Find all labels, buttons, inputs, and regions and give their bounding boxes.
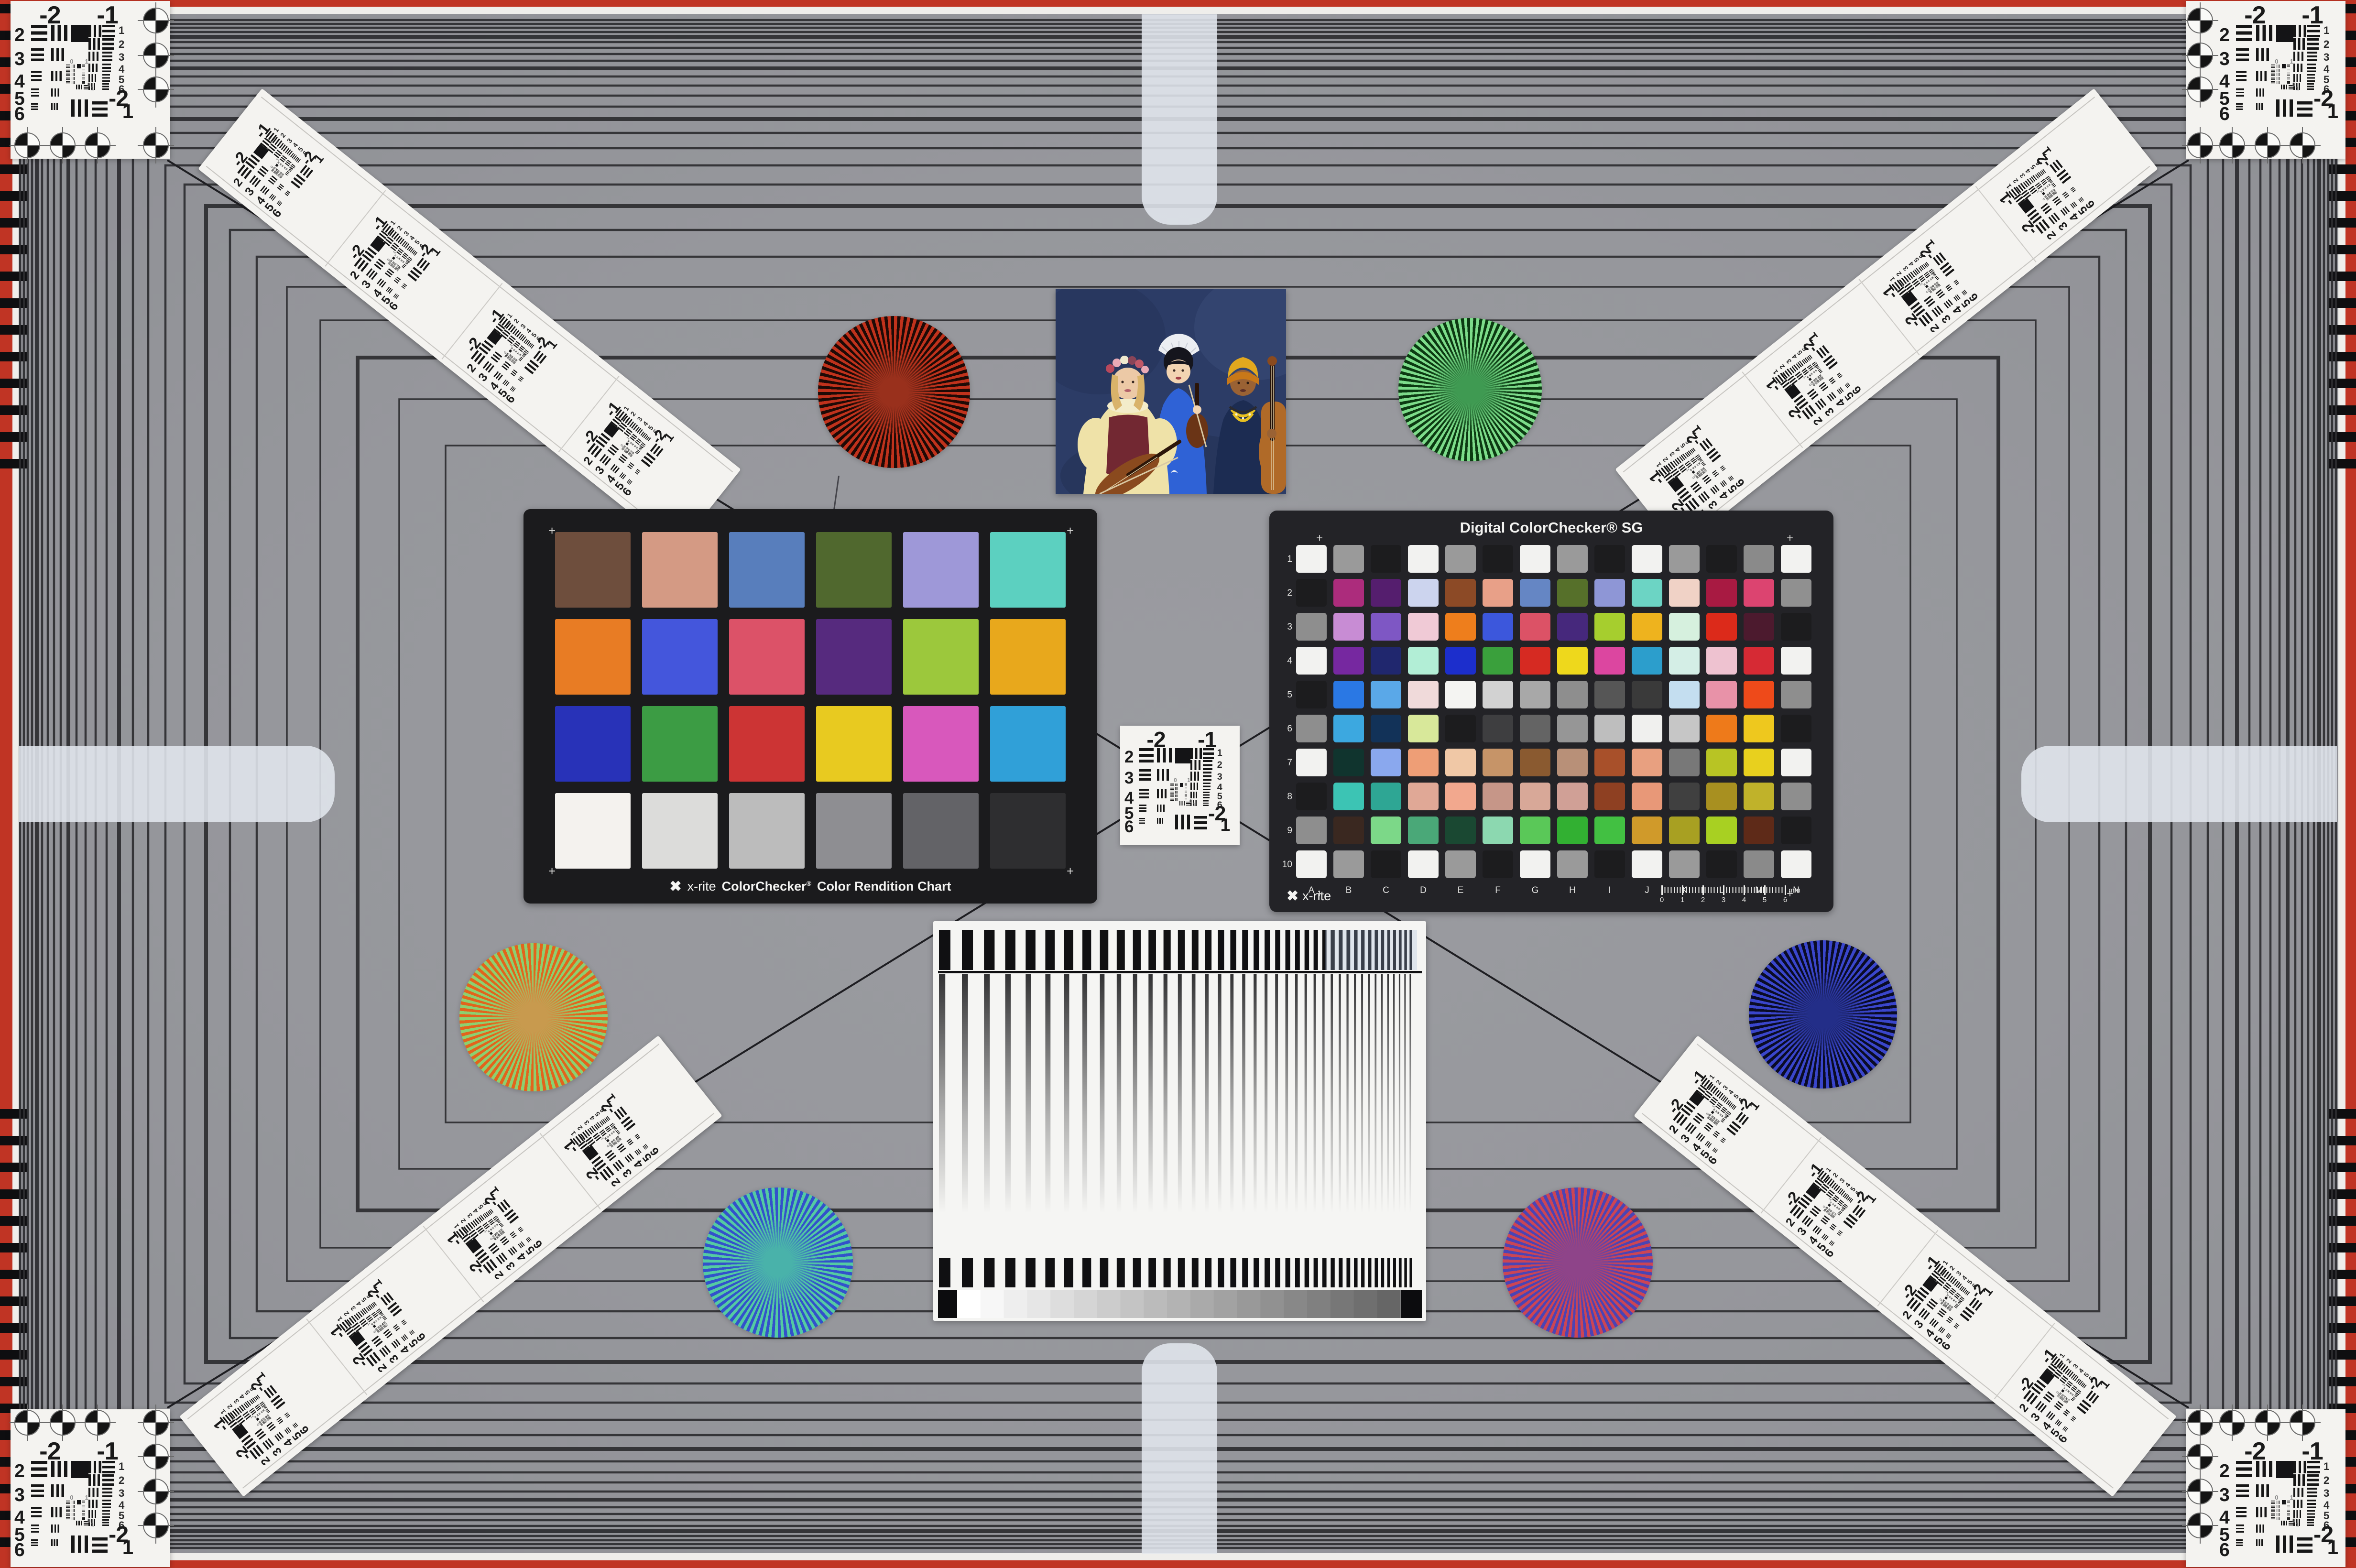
usaf-bars (31, 1484, 44, 1497)
usaf-bars (1924, 295, 1935, 307)
sg-patch-r9c1 (1296, 817, 1327, 844)
usaf-bars (1715, 1110, 1718, 1112)
usaf-bars (102, 25, 115, 38)
usaf-bars (1934, 275, 1939, 281)
sg-patch-r4c8 (1557, 647, 1588, 675)
usaf-mini-square (1808, 377, 1811, 381)
sg-patch-r4c13 (1744, 647, 1774, 675)
sg-patch-r6c12 (1706, 715, 1737, 742)
strip-usaf-block: -2-1234561234560101-21 (198, 1359, 318, 1479)
sg-patch-r8c10 (1632, 783, 1662, 810)
usaf-number: 2 (1948, 1264, 1955, 1271)
usaf-number: 3 (2219, 50, 2229, 68)
usaf-number: 1 (626, 436, 630, 440)
usaf-number: 3 (2029, 1411, 2042, 1424)
sg-patch-r5c13 (1744, 681, 1774, 708)
usaf-bars (2271, 69, 2275, 72)
usaf-bars (51, 1484, 64, 1497)
usaf-bars (82, 1513, 85, 1515)
sg-row-label: 1 (1276, 554, 1292, 565)
usaf-bars (1823, 355, 1838, 370)
usaf-mini-square (606, 1139, 610, 1142)
usaf-number: 3 (243, 185, 256, 198)
usaf-bars (2256, 25, 2272, 41)
usaf-bars (2042, 188, 2045, 191)
usaf-number: 1 (85, 1494, 88, 1501)
sg-patch-r3c13 (1744, 613, 1774, 641)
usaf-bars (401, 1319, 407, 1325)
usaf-bars (1720, 465, 1726, 471)
usaf-bars (1190, 792, 1197, 798)
sg-patch-r1c4 (1408, 545, 1439, 573)
usaf-bars (76, 1521, 82, 1525)
usaf-bars (373, 1321, 375, 1323)
sg-patch-r6c13 (1744, 715, 1774, 742)
usaf-bars (262, 1409, 265, 1411)
usaf-bars (2287, 1509, 2290, 1511)
sg-patch-r8c3 (1371, 783, 1401, 810)
usaf-number: 3 (1912, 1318, 1925, 1331)
usaf-bars (2054, 1401, 2063, 1410)
sg-patch-r9c3 (1371, 817, 1401, 844)
star-teal-icon (703, 1187, 853, 1338)
sg-col-label: N (1781, 885, 1811, 896)
usaf-bars (1813, 1225, 1822, 1234)
usaf-bars (1185, 784, 1187, 786)
fiducial-cross-icon: + (548, 864, 556, 879)
sg-row-label: 9 (1276, 826, 1292, 836)
sg-patch-r3c6 (1483, 613, 1513, 641)
usaf-number: -1 (2301, 1439, 2323, 1464)
slanted-resolution-strip: -2-1234561234560101-21-2-123456123456010… (198, 88, 741, 549)
registration-crosshair (2200, 1438, 2201, 1475)
usaf-bars (1801, 1215, 1813, 1227)
usaf-number: 2 (231, 176, 244, 189)
strip-rule (1678, 165, 2150, 541)
usaf-bars (366, 268, 377, 280)
sg-col-label: E (1445, 885, 1476, 896)
usaf-bars (2287, 65, 2290, 67)
sg-patch-r2c7 (1520, 579, 1550, 607)
cc-patch-r1c5 (903, 532, 979, 608)
usaf-bars (2287, 1517, 2290, 1520)
usaf-bars (409, 1329, 414, 1335)
usaf-bars (2078, 196, 2084, 202)
registration-crosshair (2200, 127, 2201, 163)
strip-usaf-block: -2-1234561234560101-21 (1751, 319, 1870, 439)
usaf-number: 2 (119, 1475, 124, 1486)
usaf-bars (1722, 1115, 1724, 1117)
usaf-bars (607, 444, 619, 455)
usaf-bars (1802, 404, 1816, 419)
usaf-bars (636, 446, 638, 449)
sg-patch-r3c8 (1557, 613, 1588, 641)
usaf-number: 6 (271, 207, 284, 220)
usaf-number: 3 (14, 50, 24, 68)
sg-patch-r3c3 (1371, 613, 1401, 641)
registration-crosshair (155, 71, 156, 108)
usaf-bars (2040, 203, 2052, 214)
usaf-bars (1157, 748, 1171, 762)
sg-patch-r10c2 (1333, 850, 1364, 878)
registration-crosshair (2302, 127, 2303, 163)
usaf-number: 6 (14, 105, 24, 123)
usaf-number: 2 (2219, 26, 2229, 44)
usaf-bars (2070, 1416, 2076, 1421)
usaf-bars (600, 454, 611, 465)
star-teal-core (703, 1187, 853, 1338)
usaf-number: 6 (1124, 819, 1133, 836)
corner-resolution-target: -2-1234561234560101-21 (2186, 1409, 2345, 1567)
usaf-bars (517, 352, 520, 354)
usaf-number: 2 (2219, 1462, 2229, 1481)
usaf-number: -1 (97, 1439, 118, 1464)
usaf-bars (31, 48, 44, 61)
usaf-bars (82, 77, 85, 79)
usaf-mini-square (1691, 470, 1695, 473)
usaf-mini-square (2282, 64, 2286, 68)
usaf-bars (518, 376, 524, 381)
cc-patch-r4c6 (990, 793, 1066, 869)
sweep-svg (933, 921, 1426, 1321)
usaf-bars (2236, 25, 2252, 41)
usaf-bars (2277, 1509, 2280, 1512)
usaf-bars (2067, 1398, 2070, 1401)
star-green-icon (1398, 318, 1542, 461)
usaf-number: 0 (87, 1518, 90, 1524)
usaf-number: 1 (122, 1537, 133, 1557)
registration-crosshair (2232, 127, 2233, 163)
usaf-bars (82, 69, 85, 71)
usaf-number: 2 (2065, 1357, 2072, 1364)
usaf-number: 2 (396, 225, 403, 231)
usaf-bars (284, 166, 286, 169)
star-amber-core (459, 943, 608, 1091)
sg-row-label: 3 (1276, 622, 1292, 632)
usaf-bars (66, 77, 70, 80)
usaf-bars (72, 73, 75, 76)
usaf-bars (2287, 73, 2290, 75)
usaf-bars (393, 1324, 400, 1331)
usaf-bars (1809, 374, 1811, 376)
usaf-bars (102, 52, 112, 62)
usaf-bars (1829, 1240, 1835, 1246)
usaf-number: 1 (1828, 1198, 1832, 1201)
usaf-bars (2236, 48, 2249, 61)
sg-patch-r10c8 (1557, 850, 1588, 878)
usaf-number: 1 (1193, 803, 1195, 807)
usaf-bars (88, 1488, 98, 1498)
usaf-bars (2035, 219, 2050, 233)
usaf-bars (604, 1137, 607, 1139)
usaf-bars (2293, 25, 2306, 38)
star-navy-icon (1749, 940, 1897, 1089)
usaf-mini-square (489, 1231, 492, 1235)
usaf-bars (1947, 1294, 1949, 1296)
usaf-mini-square (1828, 1203, 1831, 1207)
sg-patch-r7c7 (1520, 749, 1550, 776)
usaf-bars (51, 1507, 62, 1517)
usaf-bars (1834, 1213, 1837, 1216)
usaf-bars (377, 1318, 380, 1320)
usaf-bars (518, 1227, 524, 1232)
usaf-bars (1710, 484, 1719, 493)
slanted-resolution-strip: -2-1234561234560101-21-2-123456123456010… (179, 1035, 722, 1496)
usaf-bars (2293, 1461, 2306, 1474)
sg-patch-r5c14 (1781, 681, 1811, 708)
usaf-bars (641, 452, 655, 467)
usaf-bars (2287, 1513, 2290, 1515)
fiducial-cross-icon: + (548, 523, 556, 538)
usaf-bars (1685, 498, 1699, 512)
usaf-bars (1170, 787, 1174, 790)
frequency-sweep-chart (933, 921, 1426, 1321)
usaf-bars (1843, 1213, 1858, 1228)
sg-patch-r9c5 (1445, 817, 1476, 844)
sg-patch-r4c2 (1333, 647, 1364, 675)
usaf-number: 4 (2323, 1500, 2329, 1511)
usaf-bars (1937, 1308, 1946, 1317)
usaf-bars (82, 1505, 85, 1507)
registration-crosshair (97, 127, 98, 163)
usaf-bars (504, 1209, 519, 1224)
cc-patch-r4c4 (816, 793, 892, 869)
usaf-bars (66, 1517, 70, 1520)
usaf-bars (72, 81, 75, 84)
usaf-bars (400, 259, 403, 261)
sg-patch-r2c3 (1371, 579, 1401, 607)
usaf-bars (2236, 1461, 2252, 1477)
usaf-number: 2 (1900, 1309, 1913, 1321)
sg-col-label: G (1520, 885, 1550, 896)
ruler-number: 5 (1761, 896, 1768, 904)
sg-patch-r7c4 (1408, 749, 1439, 776)
usaf-bars (2297, 101, 2312, 116)
colorchecker-title: ColorChecker® (722, 879, 811, 894)
star-magenta-icon (1503, 1187, 1653, 1338)
usaf-bars (2256, 48, 2269, 61)
usaf-bars (617, 1143, 626, 1152)
fiducial-cross-icon: + (1787, 532, 1793, 545)
usaf-bars (391, 1339, 400, 1348)
sg-patch-r9c9 (1594, 817, 1625, 844)
usaf-bars (277, 161, 280, 163)
sg-patch-r9c6 (1483, 817, 1513, 844)
usaf-bars (494, 1225, 496, 1227)
usaf-bars (66, 1501, 70, 1503)
usaf-number: 6 (387, 300, 400, 313)
usaf-bars (102, 64, 111, 72)
usaf-bars (2293, 38, 2304, 49)
sg-patch-r9c14 (1781, 817, 1811, 844)
usaf-number: 0 (70, 58, 73, 65)
usaf-bars (2049, 184, 2051, 186)
usaf-number: 4 (14, 72, 24, 91)
x-rite-logo-icon: ✖ (669, 878, 681, 895)
usaf-bars (2065, 1388, 2068, 1391)
sg-patch-r8c14 (1781, 783, 1811, 810)
usaf-bars (371, 1323, 373, 1325)
fiducial-cross-icon: + (1787, 887, 1793, 901)
sg-patch-r4c14 (1781, 647, 1811, 675)
usaf-bars (2281, 1521, 2287, 1525)
usaf-number: 6 (2219, 1541, 2229, 1559)
sg-patch-r4c1 (1296, 647, 1327, 675)
usaf-bars (1185, 787, 1187, 789)
usaf-number: 1 (1942, 1259, 1949, 1266)
usaf-number: -1 (97, 3, 118, 28)
colorchecker-24-chart: ✖ x-rite ColorChecker® Color Rendition C… (524, 509, 1097, 904)
usaf-bars (88, 64, 97, 72)
cc-patch-r2c4 (816, 619, 892, 695)
usaf-bars (508, 1246, 517, 1255)
usaf-bars (1712, 1147, 1718, 1153)
usaf-bars (371, 1335, 382, 1347)
usaf-bars (1190, 760, 1200, 770)
usaf-number: 1 (2327, 101, 2338, 121)
usaf-number: 1 (119, 1461, 124, 1472)
sg-patch-r10c5 (1445, 850, 1476, 878)
sg-patch-r7c12 (1706, 749, 1737, 776)
usaf-number: 1 (122, 101, 133, 121)
star-amber-icon (459, 943, 608, 1091)
registration-crosshair (2200, 1473, 2201, 1510)
usaf-bars (1953, 294, 1961, 301)
usaf-bars (1926, 281, 1928, 283)
sg-patch-r10c10 (1632, 850, 1662, 878)
usaf-bars (2287, 1505, 2290, 1507)
cc-patch-r3c6 (990, 706, 1066, 782)
usaf-bars (1821, 1215, 1830, 1224)
usaf-bars (2276, 99, 2293, 116)
sg-col-label: C (1371, 885, 1401, 896)
usaf-bars (394, 254, 397, 257)
usaf-number: 1 (1711, 1104, 1715, 1108)
usaf-bars (66, 73, 70, 76)
sg-patch-r8c7 (1520, 783, 1550, 810)
usaf-number: 0 (70, 1494, 73, 1501)
usaf-number: 4 (119, 64, 124, 75)
sg-patch-r1c2 (1333, 545, 1364, 573)
usaf-bars (1807, 388, 1818, 400)
usaf-bars (31, 25, 47, 41)
usaf-bars (72, 1509, 75, 1512)
sg-col-label: K (1669, 885, 1700, 896)
usaf-number: 1 (2061, 1383, 2066, 1387)
usaf-bars (72, 77, 75, 80)
usaf-number: 1 (2296, 1522, 2299, 1528)
usaf-bars (2307, 74, 2315, 82)
sg-patch-r10c12 (1706, 850, 1737, 878)
sg-patch-r8c5 (1445, 783, 1476, 810)
cc-patch-r3c2 (642, 706, 718, 782)
sg-patch-r1c9 (1594, 545, 1625, 573)
sg-row-label: 7 (1276, 758, 1292, 768)
usaf-bars (2236, 1507, 2247, 1517)
registration-crosshair (155, 1473, 156, 1510)
usaf-bars (2307, 1488, 2317, 1498)
usaf-bars (1170, 798, 1174, 801)
usaf-bars (379, 1316, 382, 1318)
usaf-bars (634, 445, 636, 447)
sg-patch-r1c6 (1483, 545, 1513, 573)
usaf-bars (632, 443, 634, 446)
usaf-bars (488, 1230, 490, 1232)
usaf-number: 2 (119, 39, 124, 50)
usaf-bars (626, 1138, 633, 1145)
cc-patch-r1c1 (555, 532, 631, 608)
usaf-number: 2 (2323, 1475, 2329, 1486)
usaf-bars (276, 1416, 284, 1424)
usaf-number: 2 (226, 1403, 233, 1410)
usaf-mini-square (1711, 1110, 1714, 1113)
usaf-bars (1938, 1326, 1945, 1333)
sg-patch-r9c11 (1669, 817, 1700, 844)
sg-row-label: 4 (1276, 656, 1292, 666)
sg-col-label: J (1632, 885, 1662, 896)
sg-patch-r4c4 (1408, 647, 1439, 675)
usaf-bars (2287, 81, 2290, 84)
usaf-bars (1694, 465, 1697, 468)
sg-row-label: 6 (1276, 724, 1292, 734)
cc-patch-r1c4 (816, 532, 892, 608)
sg-patch-r7c1 (1296, 749, 1327, 776)
usaf-bars (2256, 1524, 2264, 1533)
ruler-number: 0 (1658, 896, 1665, 904)
usaf-bars (2277, 1505, 2280, 1508)
sg-patch-r7c5 (1445, 749, 1476, 776)
cc-patch-r4c3 (729, 793, 805, 869)
usaf-bars (1951, 1297, 1953, 1300)
usaf-number: 2 (1832, 1172, 1839, 1178)
sg-title: Digital ColorChecker® SG (1269, 519, 1833, 536)
sg-patch-r6c6 (1483, 715, 1513, 742)
usaf-bars (379, 1345, 391, 1357)
usaf-bars (88, 25, 101, 38)
usaf-bars (2040, 190, 2042, 192)
sg-patch-r9c7 (1520, 817, 1550, 844)
usaf-bars (1832, 1203, 1834, 1205)
usaf-number: 4 (119, 1500, 124, 1511)
sg-col-label: M (1744, 885, 1774, 896)
sg-patch-r6c10 (1632, 715, 1662, 742)
sg-patch-r5c10 (1632, 681, 1662, 708)
usaf-bars (1962, 289, 1967, 295)
usaf-bars (66, 69, 70, 72)
registration-crosshair (155, 1507, 156, 1544)
sg-patch-r4c9 (1594, 647, 1625, 675)
usaf-bars (2307, 83, 2314, 90)
test-chart-stage: -2-1234561234560101-21-2-123456123456010… (0, 0, 2356, 1568)
usaf-bars (2271, 81, 2275, 84)
sg-patch-r5c1 (1296, 681, 1327, 708)
strip-rule (1623, 97, 2095, 472)
usaf-bars (500, 1236, 509, 1245)
usaf-number: 1 (2296, 86, 2299, 92)
star-navy-core (1749, 940, 1897, 1089)
usaf-bars (2072, 1394, 2074, 1396)
usaf-bars (524, 359, 539, 374)
usaf-number: 0 (87, 82, 90, 88)
registration-crosshair (2200, 2, 2201, 39)
usaf-bars (1705, 1140, 1712, 1147)
usaf-number: -2 (2244, 3, 2265, 28)
usaf-bars (2236, 1484, 2249, 1497)
usaf-number: 1 (1708, 1073, 1715, 1080)
usaf-bars (1712, 469, 1719, 477)
usaf-number: -1 (1198, 729, 1216, 751)
sg-patch-r4c3 (1371, 647, 1401, 675)
